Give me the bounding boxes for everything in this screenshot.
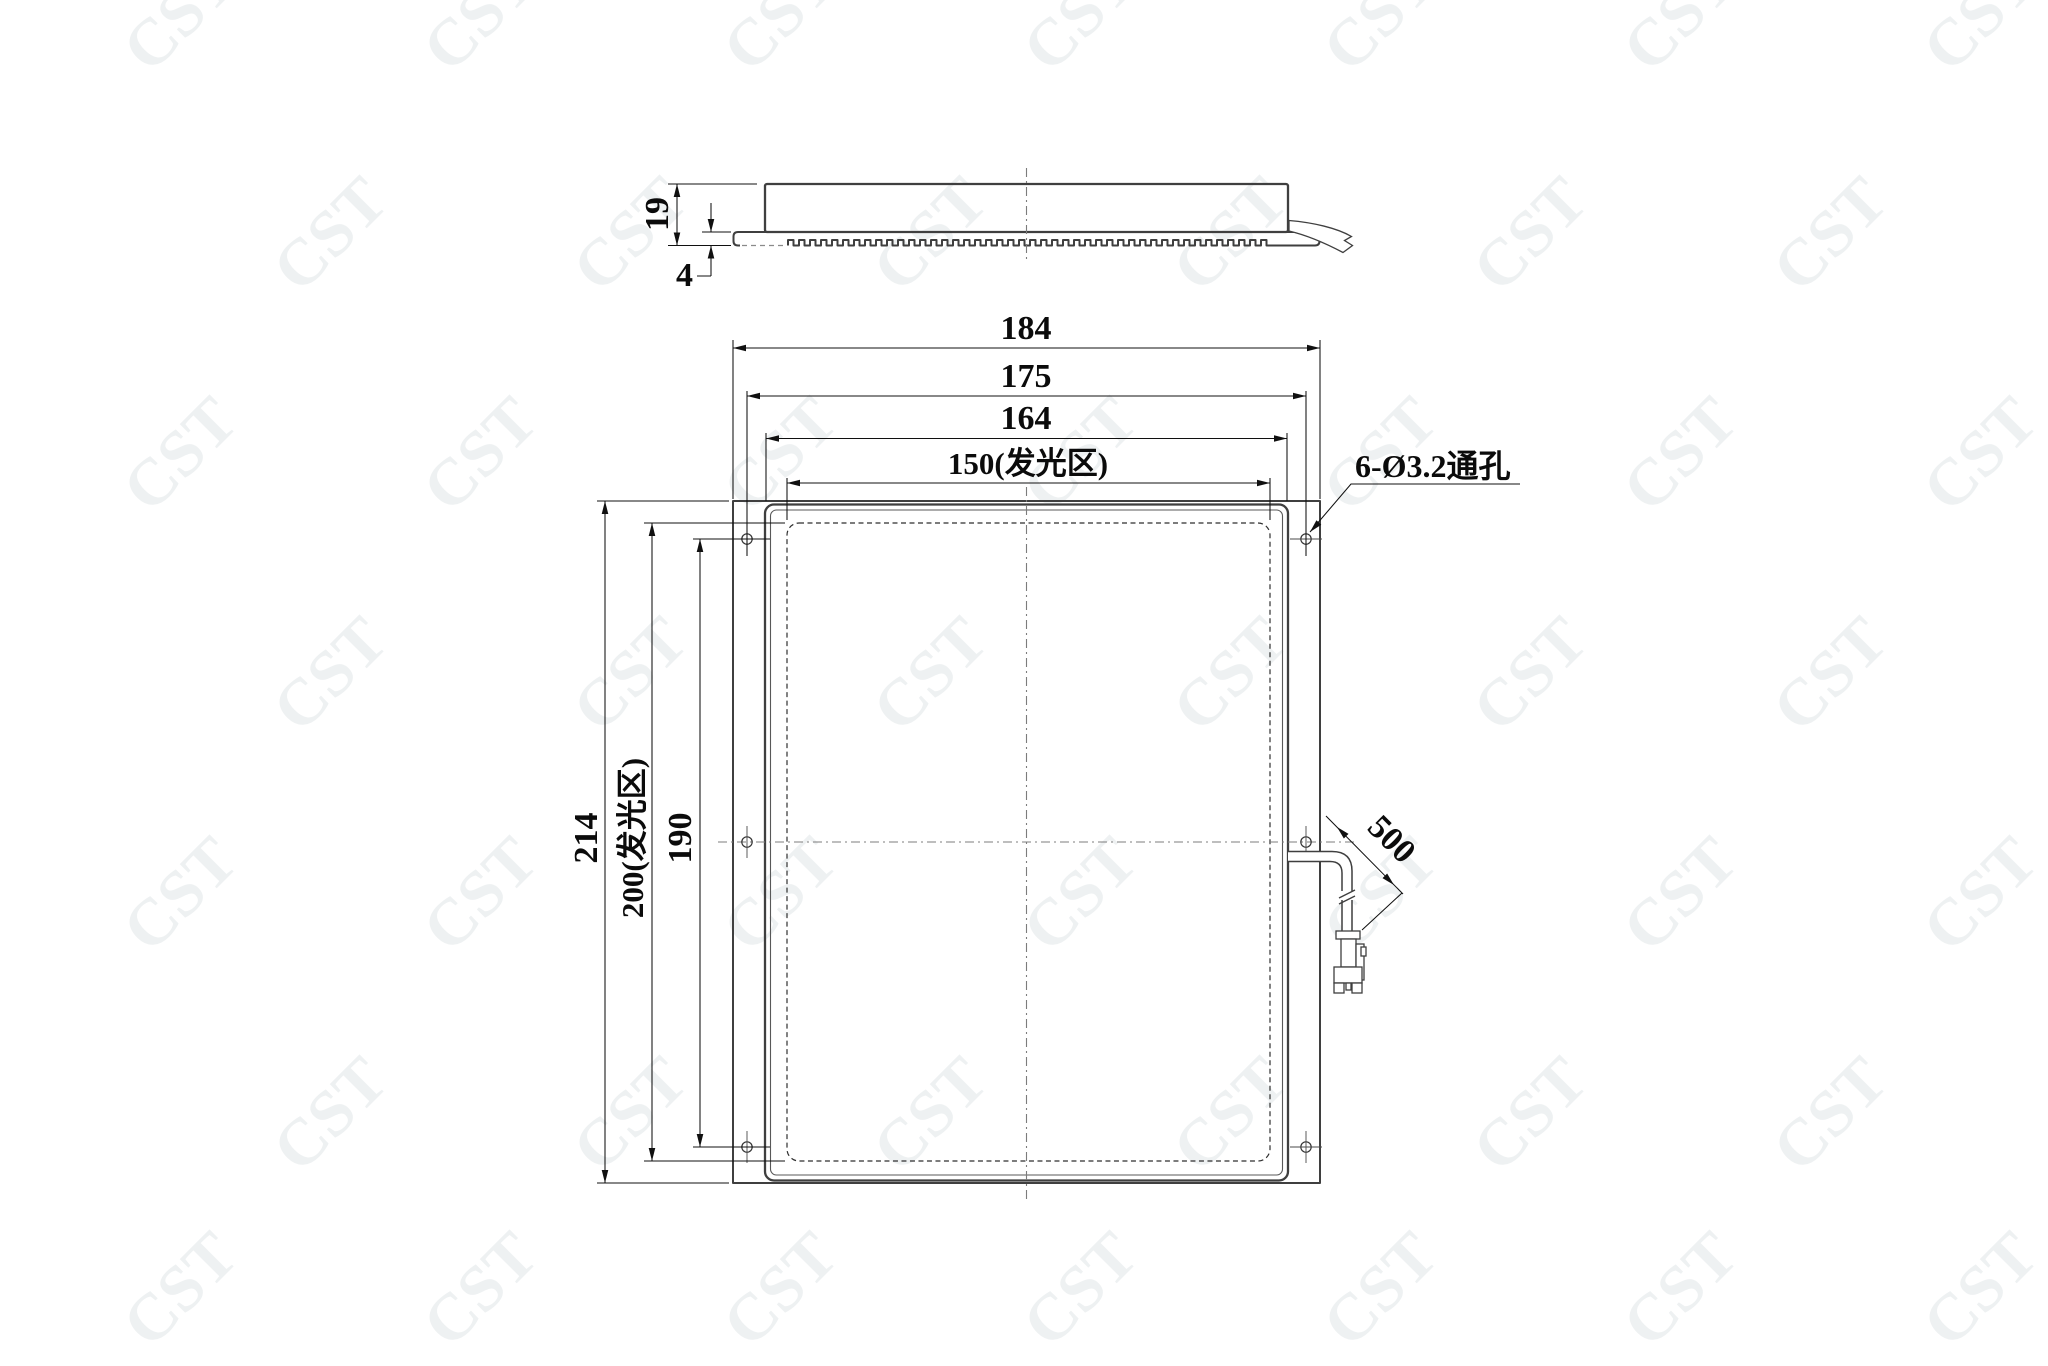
- watermark-text: CST: [1759, 163, 1901, 305]
- watermark-text: CST: [1459, 1043, 1601, 1185]
- arrowhead: [697, 539, 704, 552]
- watermark-text: CST: [1609, 0, 1751, 86]
- watermark-text: CST: [1609, 383, 1751, 525]
- watermark-text: CST: [109, 1218, 251, 1360]
- dim-text-150: 150(发光区): [948, 446, 1108, 481]
- watermark-text: CST: [1009, 0, 1151, 86]
- watermark-text: CST: [409, 1218, 551, 1360]
- connector-body: [1341, 939, 1356, 967]
- arrowhead: [1307, 345, 1320, 352]
- watermark-text: CST: [1759, 1043, 1901, 1185]
- arrowhead: [708, 246, 715, 259]
- watermark-text: CST: [1009, 1218, 1151, 1360]
- watermark-text: CST: [559, 603, 701, 745]
- watermark-text: CST: [1909, 0, 2048, 86]
- arrowhead: [1293, 393, 1306, 400]
- arrowhead: [747, 393, 760, 400]
- arrowhead: [733, 345, 746, 352]
- watermark-text: CST: [709, 1218, 851, 1360]
- connector-leg-left: [1334, 983, 1344, 993]
- watermark-text: CST: [1909, 1218, 2048, 1360]
- watermark-text: CST: [1009, 823, 1151, 965]
- watermark-text: CST: [1159, 603, 1301, 745]
- watermark-text: CST: [109, 0, 251, 86]
- arrowhead: [708, 219, 715, 232]
- watermark-text: CST: [409, 823, 551, 965]
- watermark-text: CST: [109, 383, 251, 525]
- watermark-text: CST: [709, 0, 851, 86]
- side-cable: [1289, 221, 1353, 253]
- watermark-text: CST: [109, 823, 251, 965]
- dim-text-4: 4: [676, 257, 693, 294]
- watermark-text: CST: [559, 1043, 701, 1185]
- dim-emitting-width: 150(发光区): [787, 446, 1270, 520]
- watermark-text: CST: [259, 603, 401, 745]
- watermark-layer: CST CST CST CST CST CST CST CST CST CST …: [109, 0, 2048, 1361]
- connector-pin: [1346, 983, 1351, 990]
- extension-line: [693, 539, 770, 1147]
- technical-drawing: CST CST CST CST CST CST CST CST CST CST …: [0, 0, 2048, 1366]
- watermark-text: CST: [1609, 1218, 1751, 1360]
- watermark-text: CST: [1909, 383, 2048, 525]
- dim-text-200: 200(发光区): [615, 758, 650, 918]
- dim-text-19: 19: [639, 197, 676, 231]
- cable-break-gap: [1340, 891, 1354, 900]
- dim-text-190: 190: [662, 813, 699, 864]
- arrowhead: [649, 1148, 656, 1161]
- arrowhead: [1274, 435, 1287, 442]
- watermark-text: CST: [1909, 823, 2048, 965]
- watermark-text: CST: [259, 1043, 401, 1185]
- arrowhead: [1257, 480, 1270, 487]
- hole-crosshair: [1290, 1131, 1322, 1163]
- watermark-text: CST: [1159, 1043, 1301, 1185]
- mounting-hole-bottom-right: [1290, 1131, 1322, 1163]
- dim-text-184: 184: [1001, 310, 1052, 347]
- dim-text-175: 175: [1001, 358, 1052, 395]
- watermark-text: CST: [709, 823, 851, 965]
- connector-latch-wing: [1361, 947, 1366, 956]
- watermark-text: CST: [1309, 1218, 1451, 1360]
- watermark-text: CST: [1309, 0, 1451, 86]
- dim-text-214: 214: [568, 813, 605, 864]
- arrowhead: [649, 523, 656, 536]
- dim-text-164: 164: [1001, 400, 1052, 437]
- hole-callout-text: 6-Ø3.2通孔: [1355, 448, 1511, 484]
- connector-block: [1334, 967, 1362, 983]
- watermark-text: CST: [259, 163, 401, 305]
- watermark-text: CST: [859, 1043, 1001, 1185]
- watermark-text: CST: [1759, 603, 1901, 745]
- watermark-text: CST: [409, 0, 551, 86]
- dim-hole-pitch-height: 190: [662, 539, 770, 1147]
- watermark-text: CST: [409, 383, 551, 525]
- watermark-text: CST: [1459, 603, 1601, 745]
- watermark-text: CST: [1459, 163, 1601, 305]
- arrowhead: [697, 1134, 704, 1147]
- watermark-text: CST: [1609, 823, 1751, 965]
- connector-collar: [1336, 931, 1360, 939]
- arrowhead: [602, 501, 609, 514]
- watermark-text: CST: [859, 603, 1001, 745]
- connector-leg-right: [1352, 983, 1362, 993]
- drawing-canvas: CST CST CST CST CST CST CST CST CST CST …: [0, 0, 2048, 1366]
